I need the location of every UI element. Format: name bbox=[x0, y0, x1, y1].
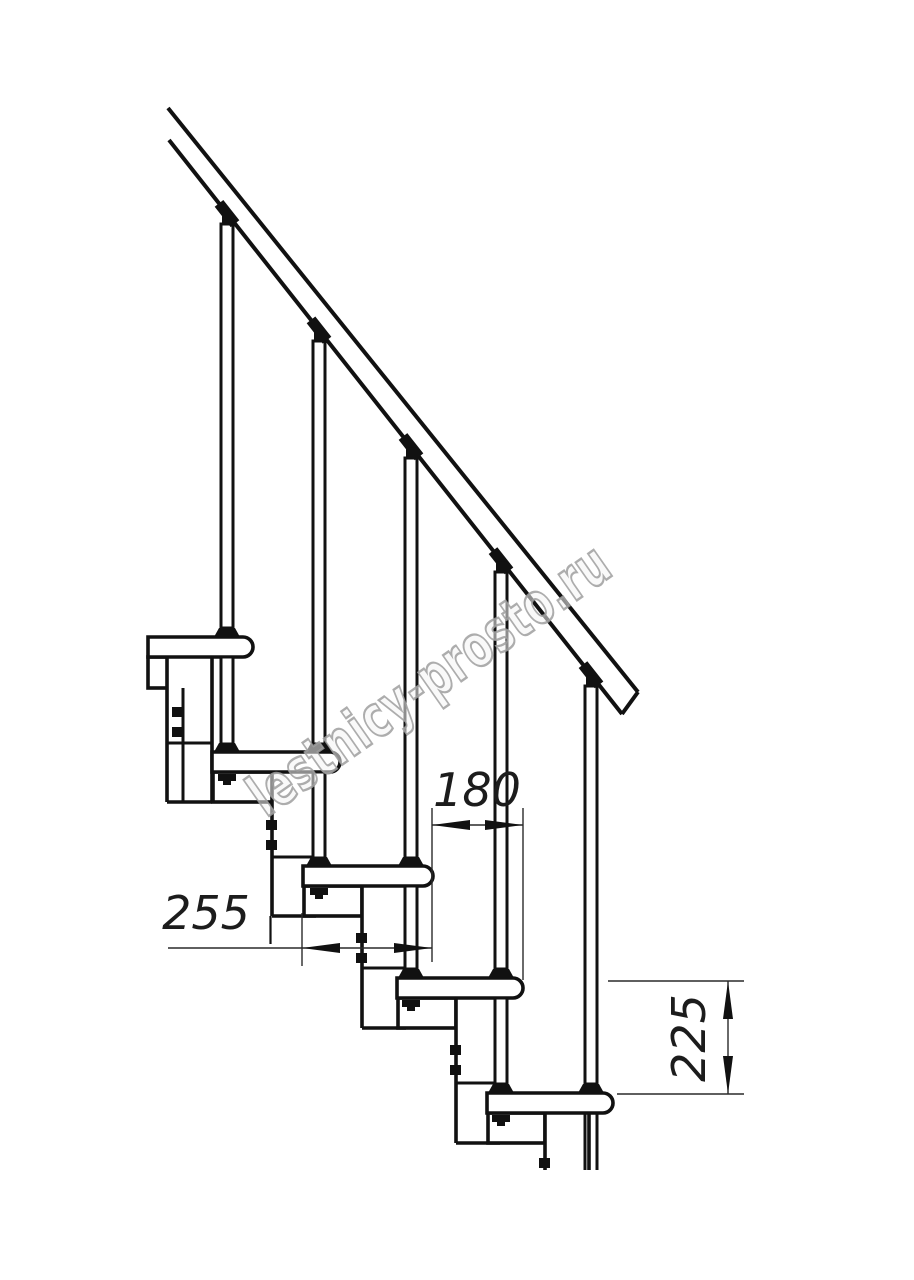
tread bbox=[303, 866, 433, 886]
staircase-drawing: 180 255 225 lestnicy-prosto.ru bbox=[0, 0, 914, 1280]
tread bbox=[397, 978, 523, 998]
tread bbox=[148, 637, 253, 657]
module-bolts bbox=[539, 1158, 550, 1168]
baluster bbox=[221, 224, 233, 744]
support-module bbox=[304, 886, 406, 1028]
dimension-label-riser: 225 bbox=[662, 994, 716, 1082]
support-module bbox=[398, 998, 500, 1143]
dimension-going: 180 bbox=[432, 763, 523, 980]
watermark-text: lestnicy-prosto.ru bbox=[235, 530, 623, 830]
handrail-end-cap bbox=[622, 692, 638, 714]
drawing-page: 180 255 225 lestnicy-prosto.ru bbox=[0, 0, 914, 1280]
tread bbox=[487, 1093, 613, 1113]
dimension-label-tread-depth: 255 bbox=[162, 886, 250, 940]
dimension-riser: 225 bbox=[608, 981, 744, 1094]
support-module bbox=[148, 657, 212, 802]
dimension-label-going: 180 bbox=[433, 763, 521, 817]
